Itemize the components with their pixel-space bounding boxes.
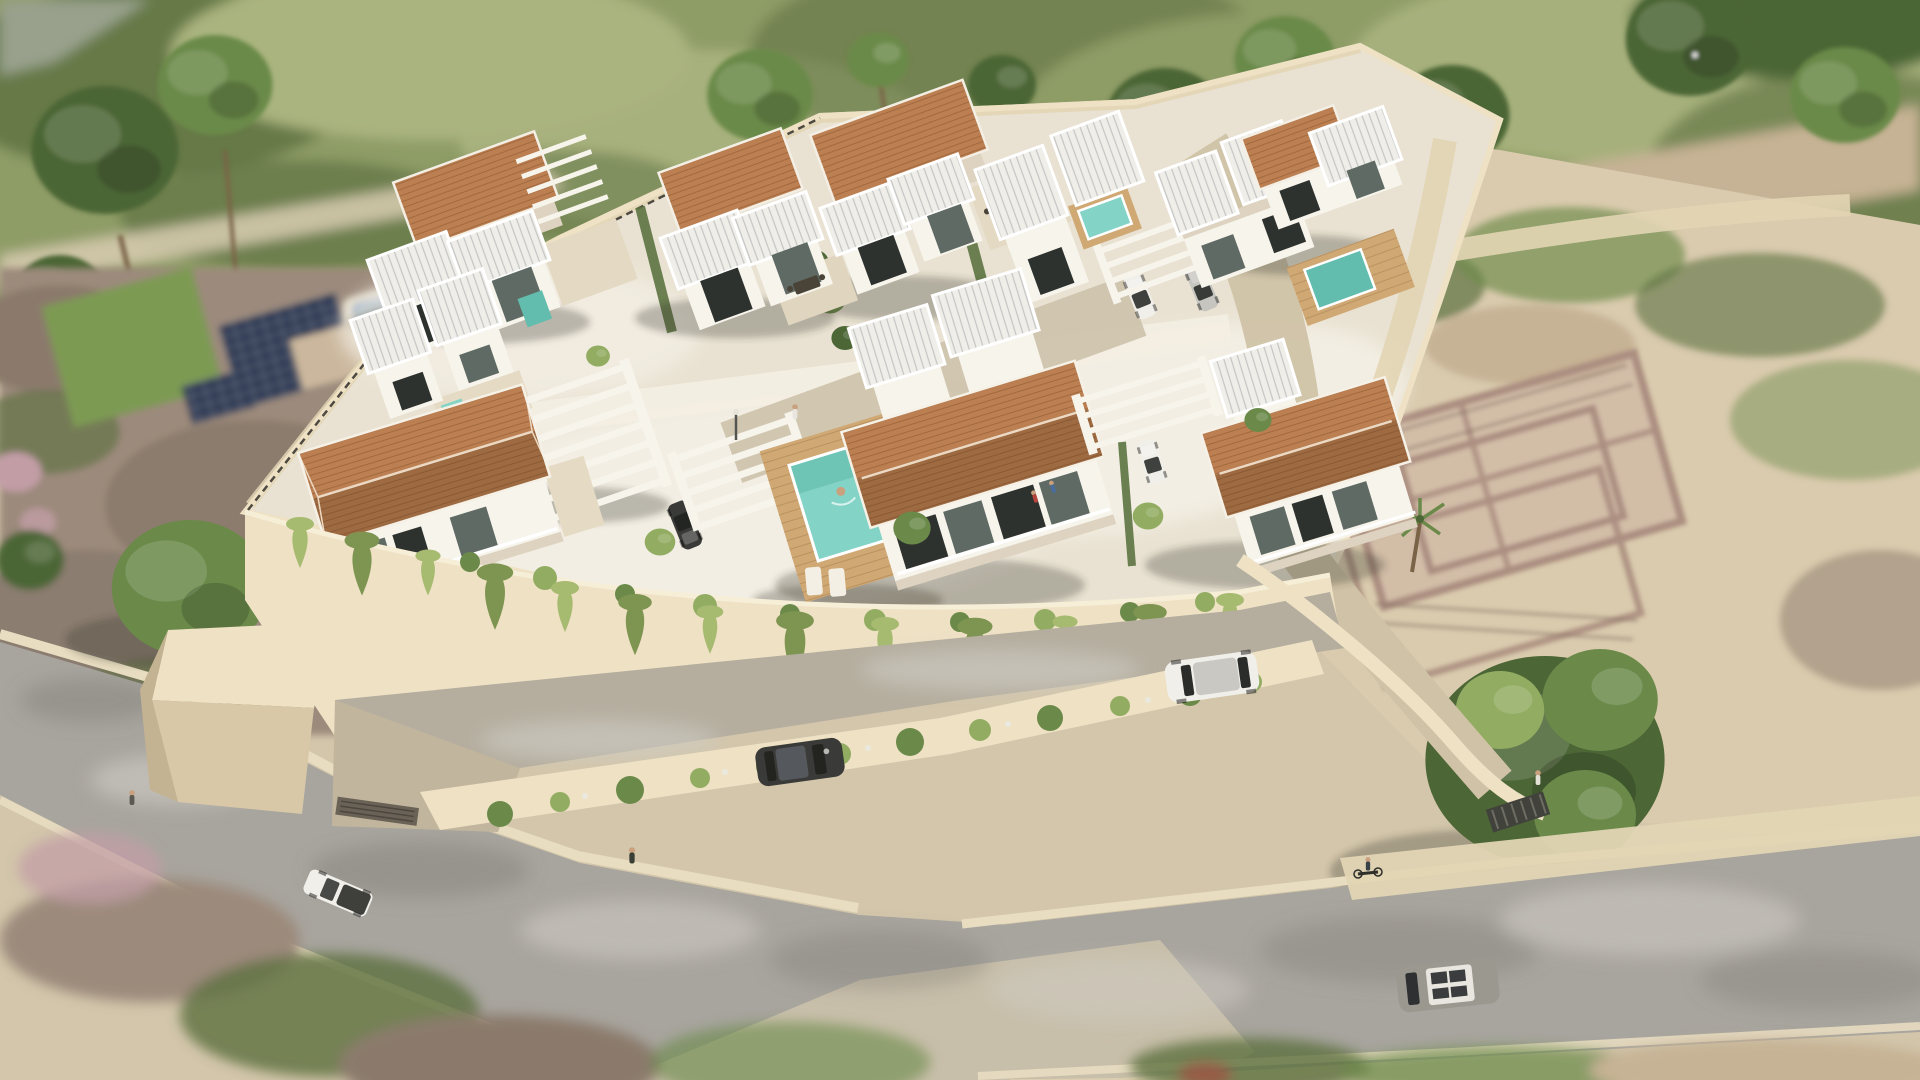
person-gate	[1535, 770, 1541, 785]
person-left-road	[129, 790, 135, 805]
architectural-render-scene: Aerial render of a walled residential de…	[0, 0, 1920, 1080]
person-path	[792, 404, 798, 419]
aerial-villa-development-render	[0, 0, 1920, 1080]
corner-wall	[140, 622, 332, 814]
sun-lounger	[828, 568, 846, 597]
sun-lounger	[805, 567, 823, 596]
person-road	[629, 847, 635, 863]
